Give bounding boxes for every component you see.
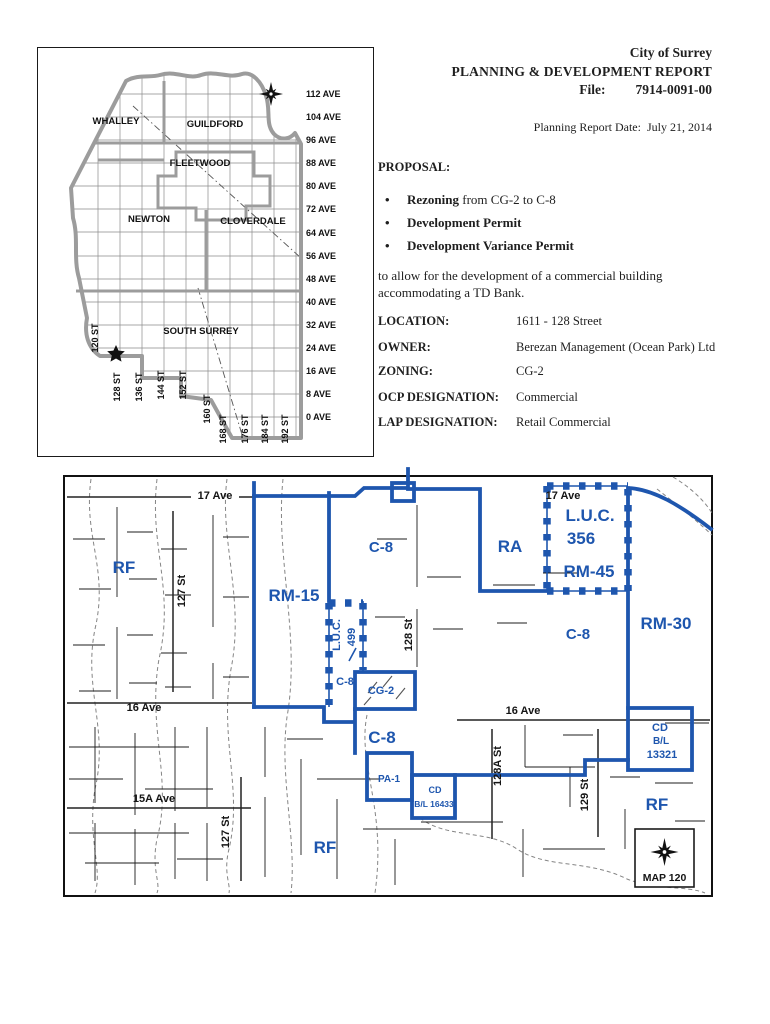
- street-label-17ave-right: 17 Ave: [546, 490, 581, 502]
- svg-text:88 AVE: 88 AVE: [306, 158, 336, 168]
- report-date: Planning Report Date: July 21, 2014: [534, 120, 712, 135]
- zone-label-cd13321-3: 13321: [647, 749, 678, 761]
- report-body: PROPOSAL: Rezoning from CG-2 to C-8 Deve…: [378, 160, 718, 431]
- street-label-16ave-left: 16 Ave: [127, 702, 162, 714]
- svg-text:40 AVE: 40 AVE: [306, 297, 336, 307]
- site-star-icon: [107, 345, 125, 362]
- svg-text:104 AVE: 104 AVE: [306, 112, 341, 122]
- zone-label-cd13321-2: B/L: [653, 736, 669, 747]
- svg-text:72 AVE: 72 AVE: [306, 204, 336, 214]
- detail-row-ocp: OCP DESIGNATION:Commercial: [378, 390, 718, 406]
- zone-label-ra: RA: [498, 537, 523, 556]
- zone-label-rm15: RM-15: [268, 586, 319, 605]
- region-label-fleetwood: FLEETWOOD: [170, 158, 231, 169]
- zone-label-c8-small: C-8: [336, 676, 354, 688]
- file-line: File:7914-0091-00: [452, 81, 712, 100]
- svg-text:48 AVE: 48 AVE: [306, 274, 336, 284]
- luc499-dashed-boundary: [329, 603, 363, 705]
- region-label-south-surrey: SOUTH SURREY: [163, 326, 239, 337]
- svg-text:176 ST: 176 ST: [240, 414, 250, 444]
- street-label-15a-ave: 15A Ave: [133, 793, 175, 805]
- svg-text:8 AVE: 8 AVE: [306, 389, 331, 399]
- svg-text:112 AVE: 112 AVE: [306, 89, 341, 99]
- map-number-label: MAP 120: [643, 872, 687, 884]
- zone-label-c8-mid: C-8: [368, 728, 395, 747]
- svg-text:24 AVE: 24 AVE: [306, 343, 336, 353]
- svg-text:136 ST: 136 ST: [134, 372, 144, 402]
- bullet-development-permit: Development Permit: [378, 211, 718, 234]
- zone-label-rm30: RM-30: [640, 614, 691, 633]
- report-title: PLANNING & DEVELOPMENT REPORT: [452, 63, 712, 82]
- svg-text:168 ST: 168 ST: [218, 414, 228, 444]
- zone-label-rf-left: RF: [113, 558, 136, 577]
- small-top-parcel-box: [392, 483, 414, 501]
- zone-label-pa1: PA-1: [378, 774, 400, 785]
- svg-text:184 ST: 184 ST: [260, 414, 270, 444]
- region-label-newton: NEWTON: [128, 214, 170, 225]
- street-label-127st-bottom: 127 St: [220, 815, 232, 848]
- cd16433-zone-box: [412, 775, 455, 818]
- report-header: City of Surrey PLANNING & DEVELOPMENT RE…: [452, 44, 712, 100]
- region-label-whalley: WHALLEY: [93, 116, 141, 127]
- bullet-rezoning: Rezoning from CG-2 to C-8: [378, 188, 718, 211]
- street-label-128st: 128 St: [403, 618, 415, 651]
- proposal-description: to allow for the development of a commer…: [378, 268, 723, 301]
- svg-text:64 AVE: 64 AVE: [306, 228, 336, 238]
- file-number: 7914-0091-00: [636, 81, 713, 100]
- zone-label-c8-right: C-8: [566, 626, 590, 643]
- zone-label-luc499-2: 499: [346, 628, 358, 646]
- street-label-127st-top: 127 St: [176, 574, 188, 607]
- street-label-16ave-right: 16 Ave: [506, 705, 541, 717]
- zone-label-cd16433-2: B/L 16433: [414, 799, 454, 809]
- svg-text:32 AVE: 32 AVE: [306, 320, 336, 330]
- surrey-locator-map: WHALLEY GUILDFORD FLEETWOOD NEWTON CLOVE…: [37, 47, 374, 457]
- street-label-129st: 129 St: [579, 778, 591, 811]
- zone-label-luc499-1: L.U.C.: [331, 619, 343, 651]
- region-label-cloverdale: CLOVERDALE: [220, 216, 285, 227]
- svg-text:96 AVE: 96 AVE: [306, 135, 336, 145]
- street-label-17ave-left: 17 Ave: [198, 490, 233, 502]
- zone-label-rm45: RM-45: [563, 562, 614, 581]
- svg-text:160 ST: 160 ST: [202, 394, 212, 424]
- svg-text:16 AVE: 16 AVE: [306, 366, 336, 376]
- zone-label-c8-top: C-8: [369, 539, 393, 556]
- detail-row-lap: LAP DESIGNATION:Retail Commercial: [378, 415, 718, 431]
- zone-label-luc356-1: L.U.C.: [565, 506, 614, 525]
- org-name: City of Surrey: [452, 44, 712, 63]
- zone-label-luc356-2: 356: [567, 529, 595, 548]
- zoning-boundaries: [254, 469, 711, 818]
- zone-label-cg2: CG-2: [368, 685, 394, 697]
- file-label: File:: [579, 82, 605, 97]
- planning-report-page: City of Surrey PLANNING & DEVELOPMENT RE…: [0, 0, 770, 1024]
- zoning-map: RF RM-15 C-8 L.U.C. 499 C-8 CG-2 C-8 RA …: [63, 475, 713, 897]
- bullet-development-variance-permit: Development Variance Permit: [378, 234, 718, 257]
- details-table: LOCATION:1611 - 128 Street OWNER:Berezan…: [378, 314, 718, 431]
- svg-text:0 AVE: 0 AVE: [306, 412, 331, 422]
- region-label-guildford: GUILDFORD: [187, 119, 244, 130]
- proposal-bullets: Rezoning from CG-2 to C-8 Development Pe…: [378, 188, 718, 257]
- svg-text:144 ST: 144 ST: [156, 370, 166, 400]
- proposal-heading: PROPOSAL:: [378, 160, 718, 175]
- street-label-128a-st: 128A St: [492, 746, 504, 786]
- detail-row-location: LOCATION:1611 - 128 Street: [378, 314, 718, 330]
- svg-text:152 ST: 152 ST: [178, 370, 188, 400]
- svg-text:120 ST: 120 ST: [90, 323, 100, 353]
- map-legend-box: MAP 120: [635, 829, 694, 887]
- avenue-labels: 112 AVE 104 AVE 96 AVE 88 AVE 80 AVE 72 …: [306, 89, 341, 422]
- svg-text:192 ST: 192 ST: [280, 414, 290, 444]
- zone-label-rf-right: RF: [646, 795, 669, 814]
- svg-text:80 AVE: 80 AVE: [306, 181, 336, 191]
- zone-label-cd13321-1: CD: [652, 722, 668, 734]
- zone-label-rf-bottom: RF: [314, 838, 337, 857]
- zone-label-cd16433-1: CD: [429, 785, 442, 795]
- detail-row-owner: OWNER:Berezan Management (Ocean Park) Lt…: [378, 340, 718, 356]
- detail-row-zoning: ZONING:CG-2: [378, 364, 718, 380]
- svg-text:56 AVE: 56 AVE: [306, 251, 336, 261]
- svg-text:128 ST: 128 ST: [112, 372, 122, 402]
